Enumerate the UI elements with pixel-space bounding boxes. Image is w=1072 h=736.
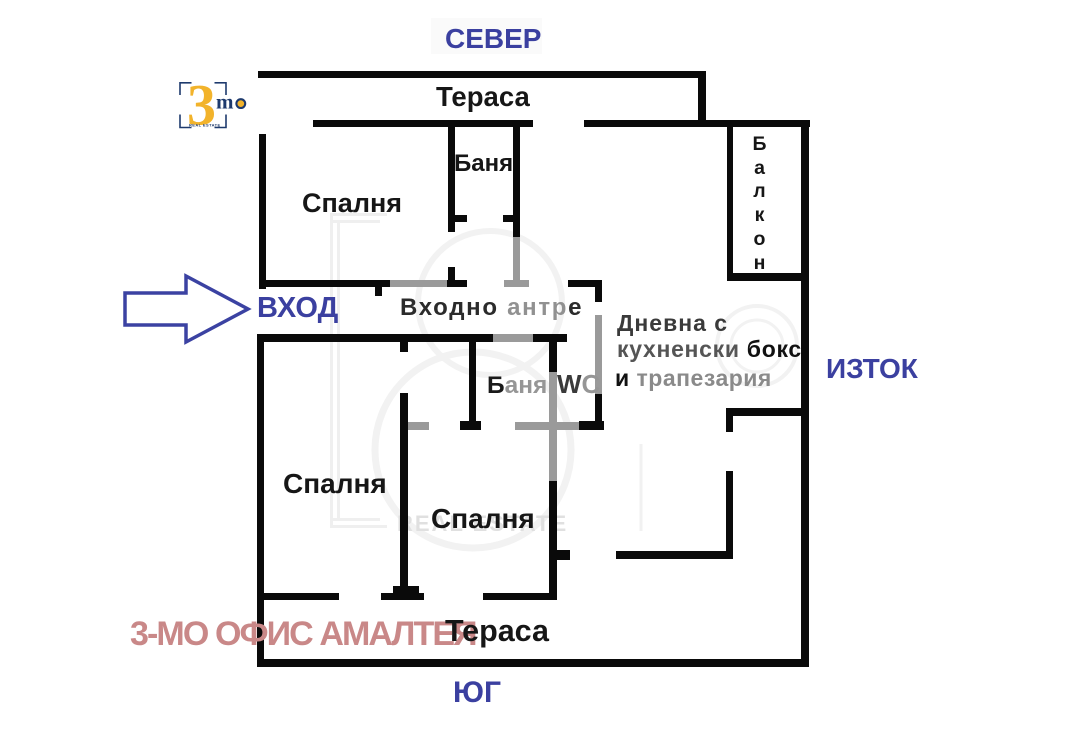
svg-text:REAL ESTATE: REAL ESTATE [189, 122, 221, 127]
svg-text:m: m [216, 90, 234, 114]
